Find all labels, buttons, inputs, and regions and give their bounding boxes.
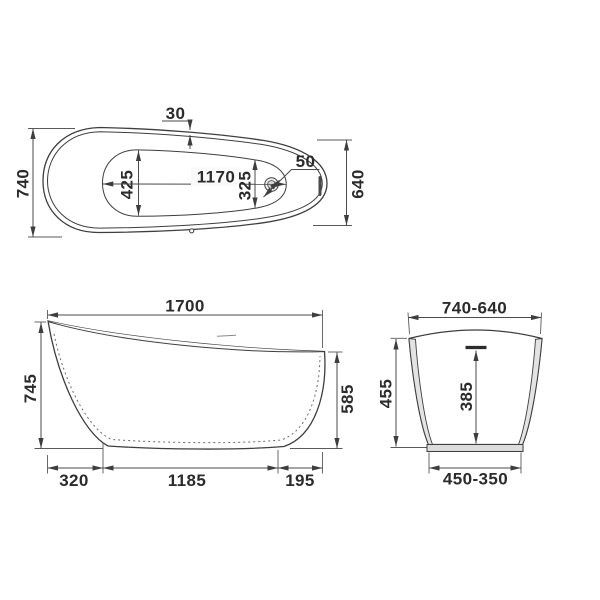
dim-label-50: 50 (296, 152, 316, 171)
dim-label-585: 585 (338, 384, 357, 414)
dim-width-top-740-640: 740-640 (408, 299, 542, 335)
top-view: 740 640 30 425 1170 325 50 (14, 104, 368, 237)
dim-label-455: 455 (377, 379, 396, 409)
tub-profile (48, 321, 325, 449)
end-view: 740-640 455 385 450-350 (377, 299, 543, 489)
right-wall-sliver (519, 339, 543, 445)
dim-label-745: 745 (21, 374, 40, 404)
dim-width-bottom-450-350: 450-350 (429, 453, 521, 489)
rim-inner-curve (49, 322, 325, 352)
technical-drawing-canvas: 740 640 30 425 1170 325 50 (0, 0, 600, 600)
tub-outer-outline (43, 128, 327, 233)
rim-hole (190, 229, 194, 233)
dim-label-1185: 1185 (168, 471, 206, 490)
side-view: 1700 745 585 320 1185 195 (21, 297, 357, 491)
dim-basin-width-325: 325 (236, 160, 256, 209)
dim-label-30: 30 (166, 104, 186, 123)
ext-line (408, 313, 410, 335)
dim-label-640: 640 (349, 169, 368, 199)
dim-label-1170: 1170 (197, 168, 235, 187)
dim-label-1700: 1700 (165, 297, 204, 316)
dim-label-325: 325 (236, 171, 255, 201)
dim-overall-width-740: 740 (14, 129, 76, 238)
dim-basin-width-425: 425 (118, 151, 139, 216)
dim-label-740: 740 (14, 169, 33, 199)
left-wall-sliver (409, 339, 433, 445)
dim-base-chain: 320 1185 195 (48, 443, 323, 490)
ext-line (541, 313, 542, 335)
dim-rim-30: 30 (162, 104, 191, 149)
rim-dash-mark (217, 335, 236, 336)
dim-overall-length-1700: 1700 (48, 297, 323, 349)
dim-label-195: 195 (285, 471, 315, 490)
bathtub-drawing-svg: 740 640 30 425 1170 325 50 (0, 0, 600, 600)
rim-sliver (48, 321, 325, 352)
base-plinth (427, 445, 523, 452)
dim-label-740-640: 740-640 (442, 299, 507, 318)
dim-height-back-745: 745 (21, 322, 103, 449)
dim-height-front-585: 585 (290, 352, 357, 449)
dim-label-320: 320 (59, 471, 89, 490)
dim-label-450-350: 450-350 (443, 470, 508, 489)
dim-label-385: 385 (457, 382, 476, 412)
dim-depth-385: 385 (457, 351, 476, 444)
